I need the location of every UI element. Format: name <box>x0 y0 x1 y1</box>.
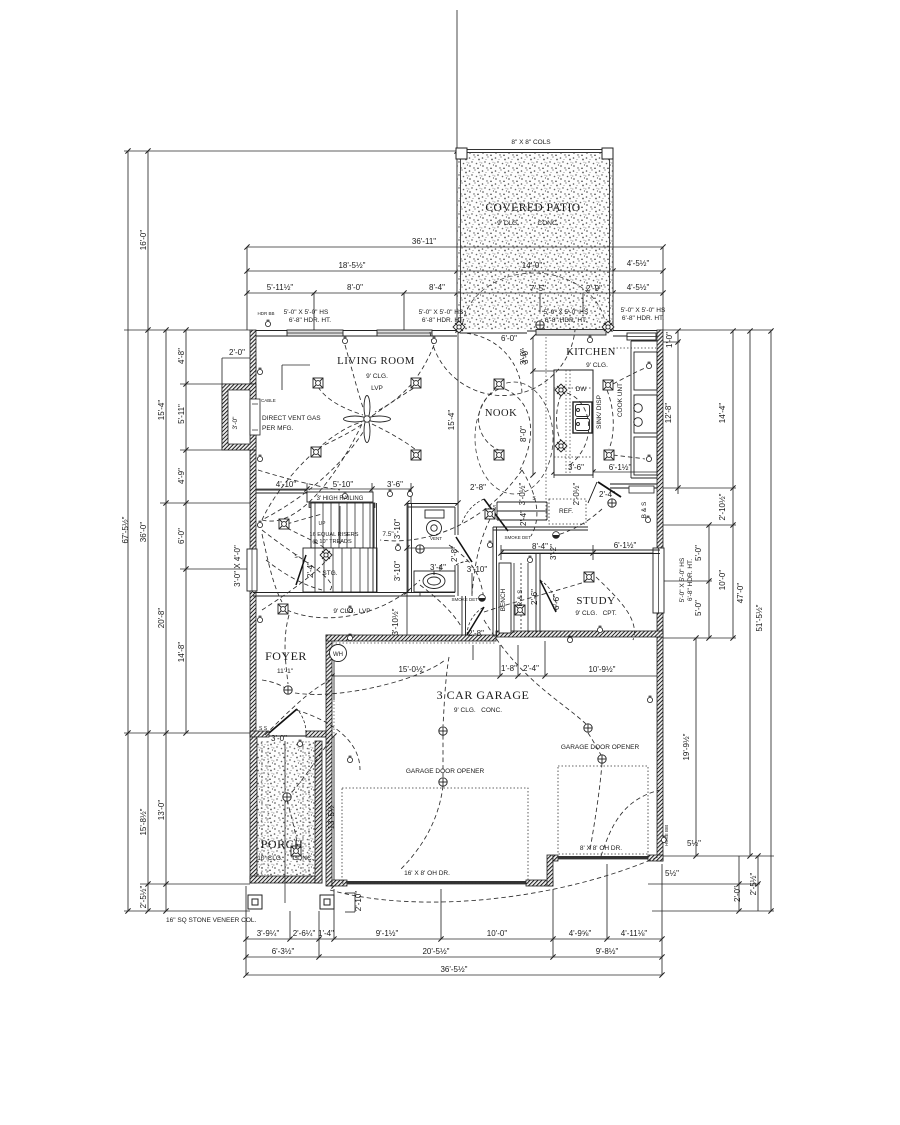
svg-text:S,S: S,S <box>488 505 497 511</box>
svg-text:3'-0" X 4'-0": 3'-0" X 4'-0" <box>233 545 242 587</box>
svg-text:11'-1": 11'-1" <box>277 668 294 675</box>
svg-text:2'-9": 2'-9" <box>586 284 602 293</box>
svg-text:5'-10": 5'-10" <box>333 480 354 489</box>
svg-text:5'-0": 5'-0" <box>694 545 703 561</box>
svg-text:3'-10": 3'-10" <box>393 561 402 582</box>
svg-text:4'-8": 4'-8" <box>177 348 186 364</box>
svg-text:9' CLG. CONC.: 9' CLG. CONC. <box>454 707 502 714</box>
svg-text:5'-0": 5'-0" <box>694 600 703 616</box>
svg-text:16 EQUAL RISERS: 16 EQUAL RISERS <box>310 532 359 538</box>
svg-text:2'-6": 2'-6" <box>530 589 539 605</box>
svg-text:VENT: VENT <box>430 536 442 541</box>
svg-text:BENCH: BENCH <box>500 588 507 611</box>
svg-text:6'-8" HDR. HT.: 6'-8" HDR. HT. <box>622 315 664 322</box>
svg-text:1'-8": 1'-8" <box>501 664 517 673</box>
svg-text:LVP: LVP <box>371 385 383 392</box>
svg-text:19'-9½": 19'-9½" <box>682 733 691 760</box>
svg-text:@ 10" TREADS: @ 10" TREADS <box>312 539 352 545</box>
svg-text:2'-10½": 2'-10½" <box>718 493 727 520</box>
svg-text:10'-9½": 10'-9½" <box>588 665 615 674</box>
svg-text:LIVING ROOM: LIVING ROOM <box>337 355 415 367</box>
svg-text:R & S: R & S <box>517 589 524 607</box>
svg-text:3'-6": 3'-6" <box>387 480 403 489</box>
svg-text:UP: UP <box>319 521 327 527</box>
svg-text:4'-10": 4'-10" <box>276 480 297 489</box>
svg-text:3'-10": 3'-10" <box>467 565 488 574</box>
svg-text:WH: WH <box>333 652 343 658</box>
svg-text:15'-0½": 15'-0½" <box>398 665 425 674</box>
svg-text:13'-0": 13'-0" <box>157 800 166 821</box>
svg-text:FOYER: FOYER <box>265 649 307 663</box>
svg-text:3'-0": 3'-0" <box>519 349 528 365</box>
svg-text:8'-0": 8'-0" <box>519 426 528 442</box>
svg-text:4'-5½": 4'-5½" <box>627 283 650 292</box>
svg-text:1'-0": 1'-0" <box>665 332 674 348</box>
svg-text:51'-5½": 51'-5½" <box>755 604 764 631</box>
svg-text:6'-8" HDR. HT.: 6'-8" HDR. HT. <box>687 559 694 601</box>
svg-text:5'-11½": 5'-11½" <box>267 283 294 292</box>
svg-text:16'-0": 16'-0" <box>139 230 148 251</box>
svg-text:2'-4": 2'-4" <box>523 664 539 673</box>
svg-text:36'-0": 36'-0" <box>139 522 148 543</box>
svg-text:3'-10½": 3'-10½" <box>391 608 400 635</box>
svg-text:5'-0" X 5'-0" HS: 5'-0" X 5'-0" HS <box>419 309 464 316</box>
svg-text:3'-10": 3'-10" <box>393 519 402 540</box>
svg-text:2'-5½": 2'-5½" <box>749 873 758 896</box>
svg-text:6'-0": 6'-0" <box>501 334 517 343</box>
svg-text:9' CLG. CPT.: 9' CLG. CPT. <box>575 610 617 617</box>
svg-text:36'-11": 36'-11" <box>412 237 436 246</box>
svg-text:CABLE: CABLE <box>261 398 276 403</box>
svg-text:B & S: B & S <box>641 501 648 518</box>
svg-text:6'-8" HDR. HT.: 6'-8" HDR. HT. <box>289 317 331 324</box>
svg-text:5'-11": 5'-11" <box>177 404 186 424</box>
svg-text:10' CLG.: 10' CLG. <box>257 855 283 862</box>
svg-text:SMOKE DET: SMOKE DET <box>504 535 531 540</box>
svg-text:6'-1½": 6'-1½" <box>614 541 637 550</box>
svg-text:5½": 5½" <box>687 839 701 848</box>
svg-text:3'-0": 3'-0" <box>232 416 239 430</box>
svg-text:9'-8½": 9'-8½" <box>596 947 619 956</box>
svg-text:8'-0": 8'-0" <box>347 283 363 292</box>
svg-text:2'-0": 2'-0" <box>733 886 742 902</box>
svg-text:9' CLG.: 9' CLG. <box>366 373 388 380</box>
svg-text:9'-1½": 9'-1½" <box>376 929 399 938</box>
svg-text:3' HIGH RAILING: 3' HIGH RAILING <box>317 496 364 502</box>
svg-text:NOOK: NOOK <box>485 408 517 419</box>
svg-text:5'-0" X 5'-0" HS: 5'-0" X 5'-0" HS <box>544 309 589 316</box>
svg-text:10'-0": 10'-0" <box>487 929 508 938</box>
svg-text:8'-4": 8'-4" <box>429 283 445 292</box>
svg-text:10'-0": 10'-0" <box>718 570 727 591</box>
svg-text:6'-8" HDR. HT.: 6'-8" HDR. HT. <box>422 317 464 324</box>
svg-text:5½": 5½" <box>665 869 679 878</box>
svg-text:4'-11⅛": 4'-11⅛" <box>621 929 648 938</box>
svg-text:20'-5½": 20'-5½" <box>422 947 449 956</box>
svg-text:3'-2": 3'-2" <box>549 544 558 560</box>
svg-text:REF.: REF. <box>559 508 573 515</box>
svg-text:3'-0": 3'-0" <box>271 734 287 743</box>
svg-text:16' X 8' OH DR.: 16' X 8' OH DR. <box>404 870 450 877</box>
svg-text:3 CAR GARAGE: 3 CAR GARAGE <box>437 688 530 702</box>
svg-text:2'-4": 2'-4" <box>599 490 615 499</box>
svg-text:5'-0" X 5'-0" HS: 5'-0" X 5'-0" HS <box>679 557 686 602</box>
svg-text:14'-0": 14'-0" <box>522 261 543 270</box>
svg-text:2'-6¼": 2'-6¼" <box>293 929 316 938</box>
svg-text:2'-8": 2'-8" <box>450 546 459 562</box>
svg-text:5'-0" X 5'-0" HS: 5'-0" X 5'-0" HS <box>621 307 666 314</box>
svg-text:PORCH: PORCH <box>261 837 304 851</box>
svg-text:13'-5½": 13'-5½" <box>327 802 336 829</box>
svg-text:GARAGE DOOR OPENER: GARAGE DOOR OPENER <box>561 744 640 751</box>
svg-text:2'-0": 2'-0" <box>229 348 245 357</box>
svg-text:2'-8": 2'-8" <box>470 483 486 492</box>
svg-text:16" SQ STONE VENEER COL.: 16" SQ STONE VENEER COL. <box>166 917 257 924</box>
svg-text:SINK/ DISP: SINK/ DISP <box>596 395 603 429</box>
svg-text:2'-4": 2'-4" <box>306 562 315 578</box>
svg-text:2'-0½": 2'-0½" <box>572 483 581 506</box>
svg-text:6'-0": 6'-0" <box>177 528 186 544</box>
svg-text:4'-9": 4'-9" <box>177 468 186 484</box>
svg-text:DW: DW <box>576 386 588 393</box>
svg-text:3'-6": 3'-6" <box>568 463 584 472</box>
svg-text:15'-4": 15'-4" <box>447 410 456 431</box>
svg-text:5'-0" X 5'-0" HS: 5'-0" X 5'-0" HS <box>284 309 329 316</box>
svg-text:36'-5½": 36'-5½" <box>440 965 467 974</box>
svg-text:2'-5½": 2'-5½" <box>139 886 148 909</box>
svg-text:HOSE BIB: HOSE BIB <box>664 825 669 846</box>
svg-text:15'-8½": 15'-8½" <box>139 808 148 835</box>
svg-text:STUDY: STUDY <box>576 595 615 607</box>
svg-text:3'-9¼": 3'-9¼" <box>257 929 280 938</box>
svg-text:8'-4": 8'-4" <box>532 542 548 551</box>
svg-text:CONC.: CONC. <box>293 855 314 862</box>
svg-text:SMOKE DET: SMOKE DET <box>451 597 478 602</box>
svg-text:2'-10": 2'-10" <box>354 891 363 912</box>
svg-text:6'-8" HDR. HT.: 6'-8" HDR. HT. <box>545 317 587 324</box>
svg-text:9' CLG.: 9' CLG. <box>586 362 608 369</box>
svg-text:DIRECT VENT GAS: DIRECT VENT GAS <box>262 415 321 422</box>
svg-text:9' CLG. LVP: 9' CLG. LVP <box>333 608 370 615</box>
svg-text:67'-5½": 67'-5½" <box>121 516 130 543</box>
svg-text:1'-4": 1'-4" <box>318 929 334 938</box>
svg-text:COVERED PATIO: COVERED PATIO <box>485 202 580 214</box>
svg-text:9' CLG.: 9' CLG. <box>497 220 519 227</box>
svg-text:3'-4": 3'-4" <box>430 563 446 572</box>
svg-text:15'-4": 15'-4" <box>157 400 166 421</box>
svg-text:6'-6": 6'-6" <box>552 594 561 610</box>
svg-text:KITCHEN: KITCHEN <box>566 347 616 358</box>
svg-text:GARAGE DOOR OPENER: GARAGE DOOR OPENER <box>406 768 485 775</box>
svg-text:2'-8": 2'-8" <box>468 629 484 638</box>
svg-text:3'-0½": 3'-0½" <box>518 483 527 506</box>
svg-text:PER MFG.: PER MFG. <box>262 425 294 432</box>
svg-text:14'-4": 14'-4" <box>718 403 727 424</box>
svg-text:HDR BB: HDR BB <box>257 311 274 316</box>
svg-text:STG.: STG. <box>322 570 337 577</box>
svg-text:7'-5": 7'-5" <box>530 284 546 293</box>
svg-text:8" X 8" COLS: 8" X 8" COLS <box>511 139 551 146</box>
svg-text:6'-1½": 6'-1½" <box>609 463 632 472</box>
svg-text:COOK UNT: COOK UNT <box>617 383 624 417</box>
svg-text:S S: S S <box>259 726 268 732</box>
svg-text:7.5": 7.5" <box>382 531 394 538</box>
svg-text:6'-3½": 6'-3½" <box>272 947 295 956</box>
svg-text:12'-8": 12'-8" <box>664 403 673 424</box>
svg-text:CONC.: CONC. <box>538 220 559 227</box>
svg-text:14'-8": 14'-8" <box>177 642 186 663</box>
svg-text:20'-8": 20'-8" <box>157 608 166 629</box>
svg-text:8' X 8' OH DR.: 8' X 8' OH DR. <box>580 845 622 852</box>
svg-text:47'-0": 47'-0" <box>736 583 745 604</box>
svg-text:4'-9⅝": 4'-9⅝" <box>569 929 592 938</box>
svg-text:4'-5½": 4'-5½" <box>627 259 650 268</box>
svg-text:2'-4": 2'-4" <box>519 510 528 526</box>
svg-text:18'-5½": 18'-5½" <box>338 261 365 270</box>
